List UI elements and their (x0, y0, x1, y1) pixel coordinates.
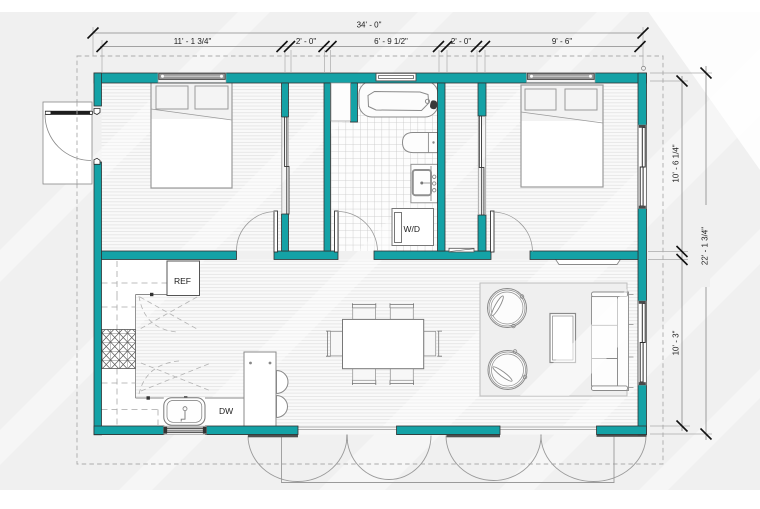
svg-text:2' - 0": 2' - 0" (296, 37, 317, 46)
svg-text:10' - 3": 10' - 3" (672, 330, 681, 355)
svg-text:10' - 6 1/4": 10' - 6 1/4" (672, 144, 681, 182)
svg-text:34' - 0": 34' - 0" (357, 21, 382, 30)
svg-text:9' - 6": 9' - 6" (552, 37, 573, 46)
svg-text:2' - 0": 2' - 0" (451, 37, 472, 46)
svg-text:DW: DW (219, 406, 233, 416)
svg-text:6' - 9 1/2": 6' - 9 1/2" (374, 37, 408, 46)
svg-text:11' - 1 3/4": 11' - 1 3/4" (174, 37, 212, 46)
svg-text:W/D: W/D (404, 224, 421, 234)
svg-text:22' - 1 3/4": 22' - 1 3/4" (701, 227, 710, 265)
svg-text:REF: REF (174, 276, 191, 286)
